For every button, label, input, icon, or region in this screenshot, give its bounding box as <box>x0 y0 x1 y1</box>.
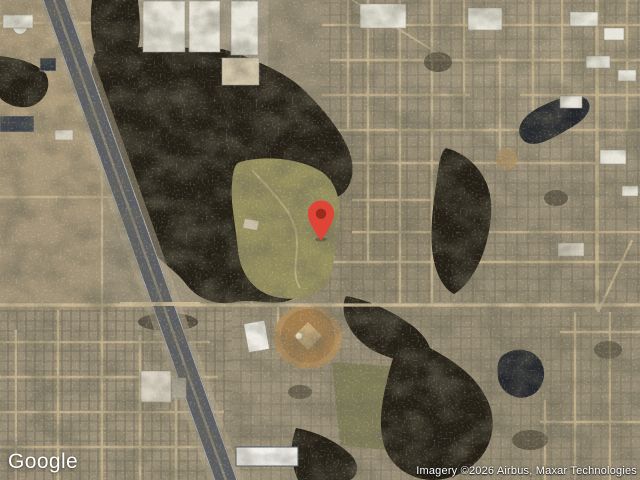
map-pin[interactable] <box>307 199 335 242</box>
map-canvas[interactable]: Google Imagery ©2026 Airbus, Maxar Techn… <box>0 0 640 480</box>
google-logo[interactable]: Google <box>8 450 78 474</box>
housing-texture-bottom-right <box>232 308 640 480</box>
housing-texture-right <box>320 0 640 302</box>
red-map-pin-icon <box>307 199 335 242</box>
imagery-attribution: Imagery ©2026 Airbus, Maxar Technologies <box>416 465 637 477</box>
